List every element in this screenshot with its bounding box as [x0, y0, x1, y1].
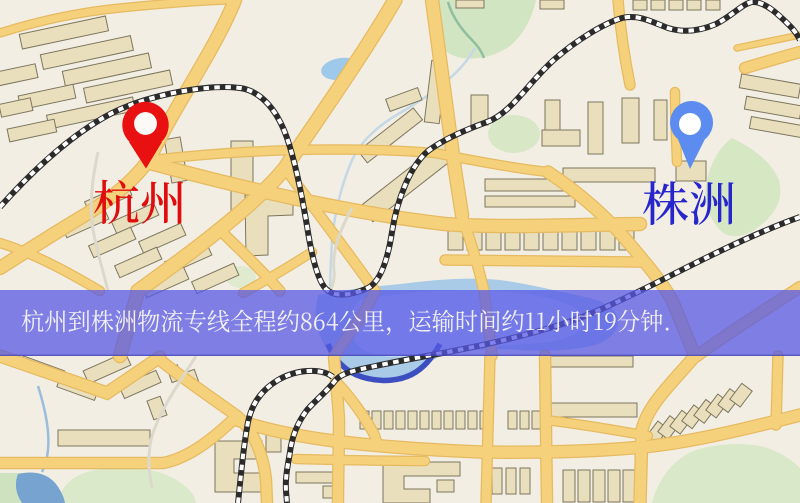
svg-text:杭州: 杭州 [93, 167, 187, 234]
svg-text:杭州到株洲物流专线全程约864公里，运输时间约11小时19分: 杭州到株洲物流专线全程约864公里，运输时间约11小时19分钟. [21, 303, 671, 337]
svg-text:株洲: 株洲 [642, 168, 736, 235]
